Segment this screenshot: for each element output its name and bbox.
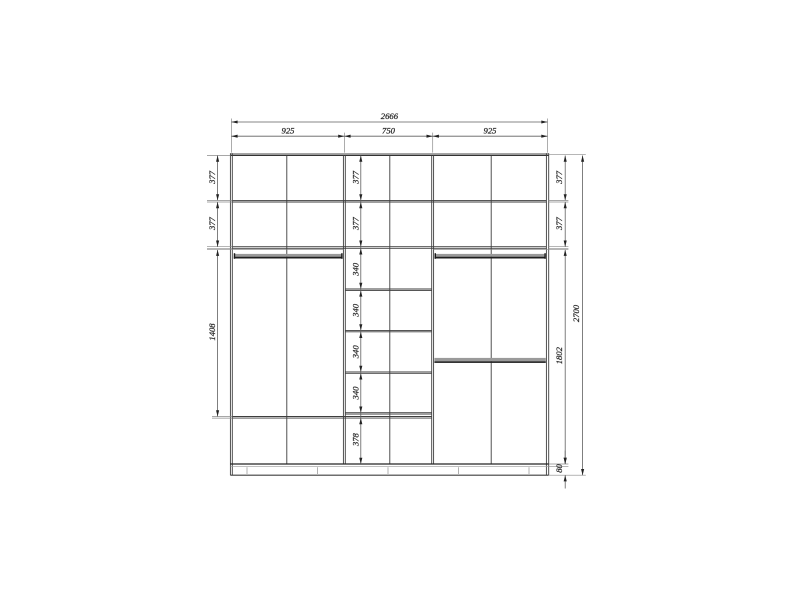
svg-text:1408: 1408 bbox=[207, 323, 217, 341]
svg-text:2700: 2700 bbox=[571, 304, 581, 322]
svg-text:340: 340 bbox=[350, 262, 360, 277]
svg-text:377: 377 bbox=[350, 170, 360, 185]
svg-text:377: 377 bbox=[350, 216, 360, 231]
svg-text:925: 925 bbox=[282, 125, 296, 135]
svg-text:340: 340 bbox=[350, 386, 360, 401]
svg-text:377: 377 bbox=[554, 170, 564, 185]
svg-text:340: 340 bbox=[350, 345, 360, 360]
svg-text:925: 925 bbox=[484, 125, 498, 135]
svg-text:340: 340 bbox=[350, 303, 360, 318]
svg-text:2666: 2666 bbox=[381, 111, 399, 121]
svg-text:377: 377 bbox=[207, 216, 217, 231]
svg-text:80: 80 bbox=[554, 464, 564, 473]
svg-text:378: 378 bbox=[350, 432, 360, 447]
svg-text:377: 377 bbox=[207, 170, 217, 185]
svg-text:750: 750 bbox=[382, 125, 396, 135]
svg-text:1802: 1802 bbox=[554, 346, 564, 364]
svg-text:377: 377 bbox=[554, 216, 564, 231]
